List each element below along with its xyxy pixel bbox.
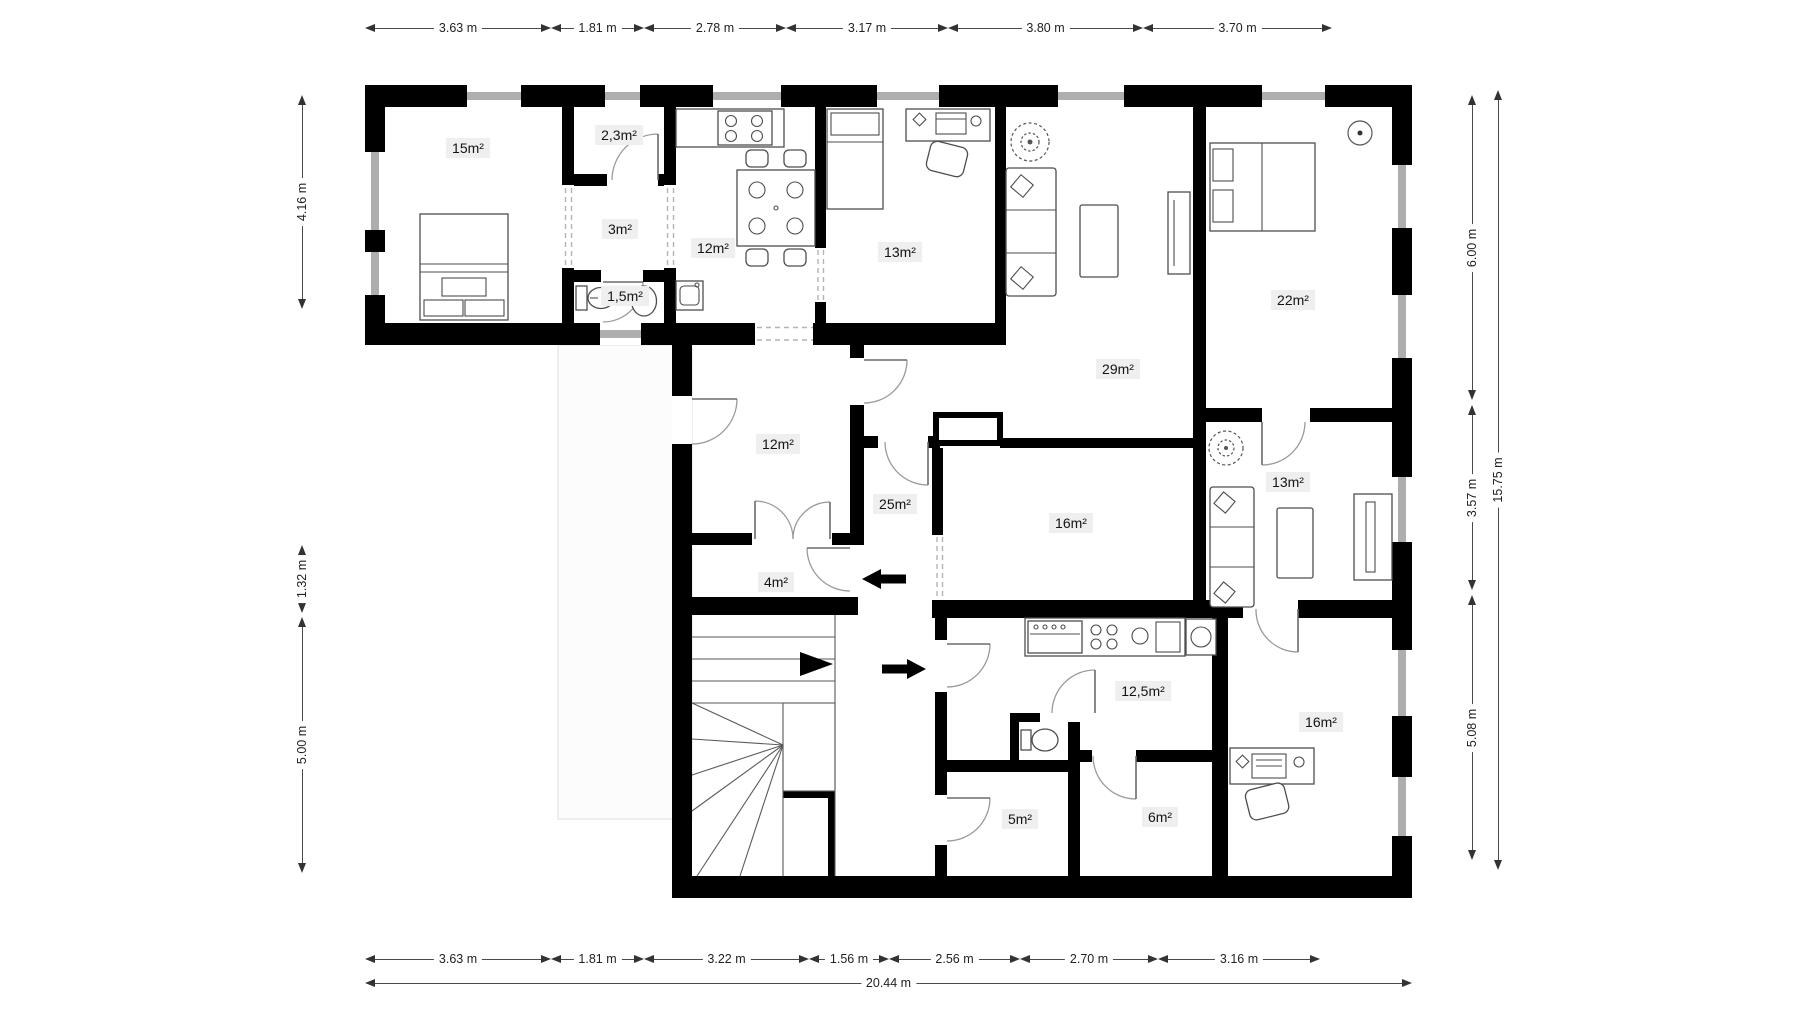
tv-sideboard-13 [1354, 494, 1392, 580]
room-area-label: 16m² [1049, 513, 1093, 533]
coffee-table-13 [1277, 508, 1313, 578]
dimension-line: 6.00 m [1465, 95, 1479, 400]
dimension-label: 4.16 m [295, 178, 310, 226]
dimension-line: 5.00 m [295, 617, 309, 873]
room-area-label: 12m² [756, 434, 800, 454]
dimension-label: 15.75 m [1491, 452, 1506, 507]
kitchen-counter-stove [676, 109, 784, 147]
dimension-line: 3.17 m [786, 21, 948, 35]
room-area-label: 15m² [446, 138, 490, 158]
dimension-label: 3.63 m [434, 952, 482, 967]
arrow-left-icon [862, 569, 906, 589]
dimension-label: 3.63 m [434, 21, 482, 36]
room-area-label: 25m² [873, 494, 917, 514]
dimension-line: 3.80 m [948, 21, 1143, 35]
dimension-line: 1.81 m [551, 952, 644, 966]
dimension-line: 3.16 m [1158, 952, 1320, 966]
toilet-icon-2 [1021, 729, 1058, 751]
room-area-label: 6m² [1142, 807, 1178, 827]
dimension-line: 2.70 m [1020, 952, 1158, 966]
arrow-right-icon [882, 659, 926, 679]
room-area-label: 2,3m² [595, 125, 643, 145]
dimension-label: 6.00 m [1465, 223, 1480, 271]
dimension-label: 1.81 m [573, 21, 621, 36]
dimension-line: 3.63 m [365, 952, 551, 966]
room-area-label: 22m² [1271, 290, 1315, 310]
plant-icon-2 [1209, 431, 1243, 465]
dimension-line: 1.56 m [809, 952, 889, 966]
desk-16 [1230, 748, 1314, 821]
dimension-label: 3.22 m [702, 952, 750, 967]
direction-arrows [862, 569, 926, 679]
dimension-line: 3.22 m [644, 952, 809, 966]
stairs-up-arrow-icon [800, 652, 833, 676]
room-area-label: 12m² [691, 238, 735, 258]
dimension-label: 1.81 m [573, 952, 621, 967]
terrace-outline [558, 345, 692, 819]
dimension-line: 20.44 m [365, 976, 1412, 990]
dimension-label: 3.17 m [843, 21, 891, 36]
bed-double-15 [420, 214, 508, 320]
dimension-label: 3.70 m [1213, 21, 1261, 36]
dimension-label: 5.08 m [1465, 703, 1480, 751]
floor-plan-page: 15m²2,3m²3m²12m²1,5m²13m²29m²22m²12m²25m… [0, 0, 1800, 1013]
dimension-line: 4.16 m [295, 95, 309, 309]
room-area-label: 16m² [1299, 712, 1343, 732]
dimension-line: 3.70 m [1143, 21, 1332, 35]
dimension-line: 2.56 m [889, 952, 1020, 966]
dimension-line: 2.78 m [644, 21, 786, 35]
dimension-label: 2.70 m [1065, 952, 1113, 967]
dimension-label: 3.57 m [1465, 473, 1480, 521]
dimension-line: 15.75 m [1491, 90, 1505, 870]
sofa-29 [1006, 168, 1056, 296]
dimension-label: 3.80 m [1021, 21, 1069, 36]
dimension-label: 3.16 m [1215, 952, 1263, 967]
coffee-table-29 [1080, 205, 1118, 277]
dimension-line: 5.08 m [1465, 595, 1479, 860]
plant-icon [1011, 123, 1049, 161]
dimension-label: 2.56 m [930, 952, 978, 967]
sofa-13 [1210, 487, 1254, 607]
tv-29 [1168, 192, 1190, 274]
room-area-label: 13m² [1266, 472, 1310, 492]
room-area-label: 13m² [878, 242, 922, 262]
dimension-line: 1.81 m [551, 21, 644, 35]
dimension-label: 2.78 m [691, 21, 739, 36]
room-area-label: 3m² [602, 219, 638, 239]
dimension-line: 1.32 m [295, 545, 309, 613]
chimney-block [936, 415, 1000, 443]
ceiling-lamp-icon [1348, 121, 1372, 145]
room-area-label: 4m² [758, 572, 794, 592]
room-area-label: 1,5m² [601, 286, 649, 306]
dimension-line: 3.57 m [1465, 405, 1479, 590]
dining-table [737, 150, 815, 266]
bed-double-22 [1210, 143, 1315, 231]
room-area-label: 12,5m² [1115, 681, 1171, 701]
desk-13 [906, 109, 990, 178]
dimension-line: 3.63 m [365, 21, 551, 35]
bed-single-13 [827, 109, 883, 209]
dimension-label: 1.32 m [295, 555, 310, 603]
room-area-label: 5m² [1002, 809, 1038, 829]
dimension-label: 20.44 m [861, 976, 916, 991]
dimension-label: 1.56 m [825, 952, 873, 967]
kitchen-corner-sink [676, 281, 703, 310]
dimension-label: 5.00 m [295, 721, 310, 769]
room-area-label: 29m² [1096, 359, 1140, 379]
staircase [692, 615, 835, 876]
kitchen-counter-lower [1025, 618, 1216, 656]
